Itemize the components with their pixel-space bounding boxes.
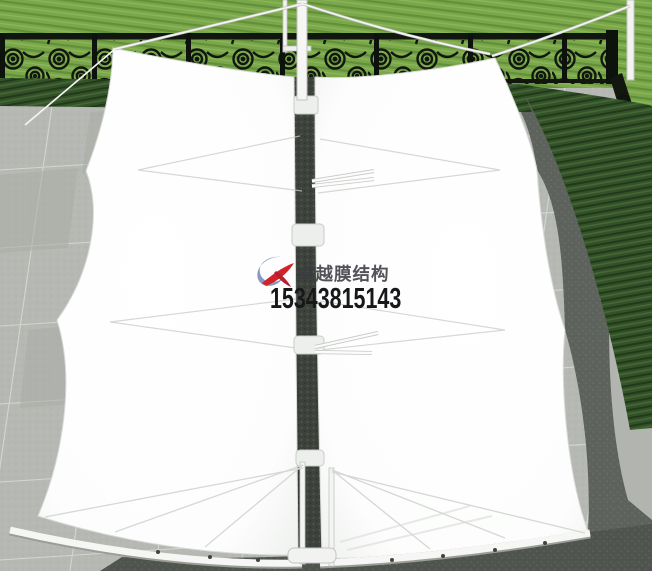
rendering-canvas: 卓越膜结构 15343815143 — [0, 0, 652, 571]
mast-base-plate — [288, 548, 336, 563]
corner-mast — [627, 0, 634, 80]
phone-number: 15343815143 — [270, 283, 401, 316]
